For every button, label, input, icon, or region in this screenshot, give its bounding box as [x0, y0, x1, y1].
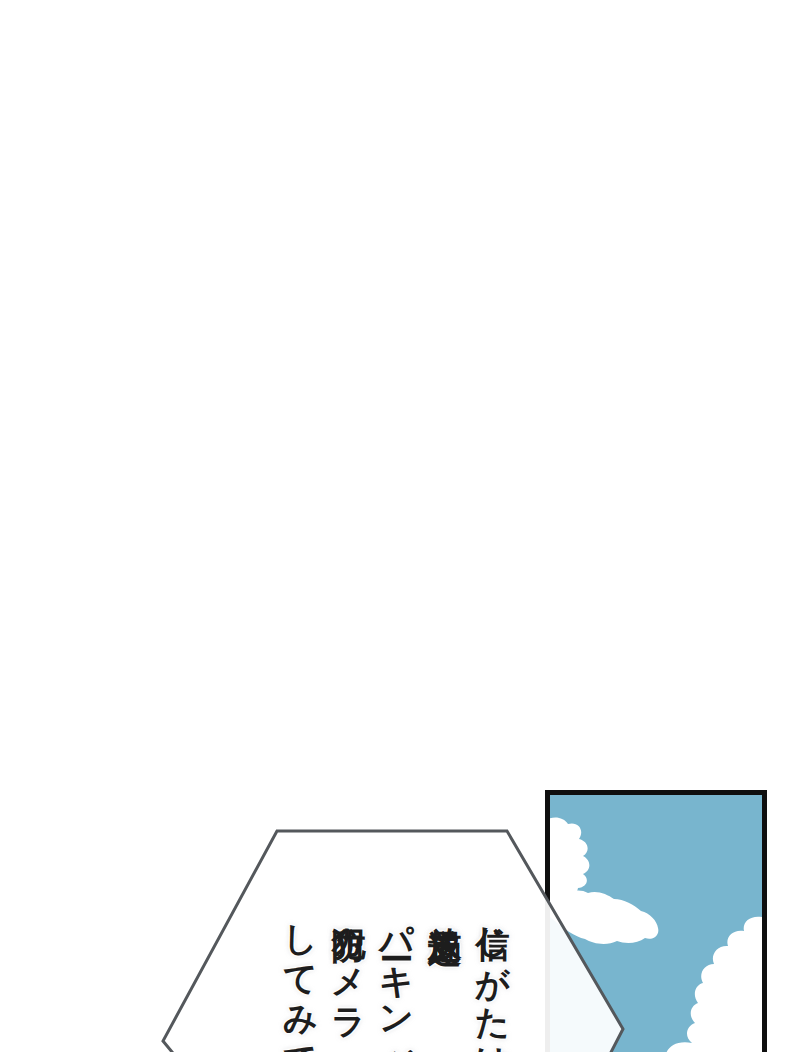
manga-page: 信じがたけ 放送局近く パーキング 防犯カメラ してみてく: [0, 0, 800, 1052]
cloud-upper-left-icon: [550, 817, 658, 943]
speech-bubble-text: 信じがたけ 放送局近く パーキング 防犯カメラ してみてく: [277, 901, 517, 1052]
sky-clouds: [550, 795, 762, 1052]
sky-panel: [545, 790, 767, 1052]
